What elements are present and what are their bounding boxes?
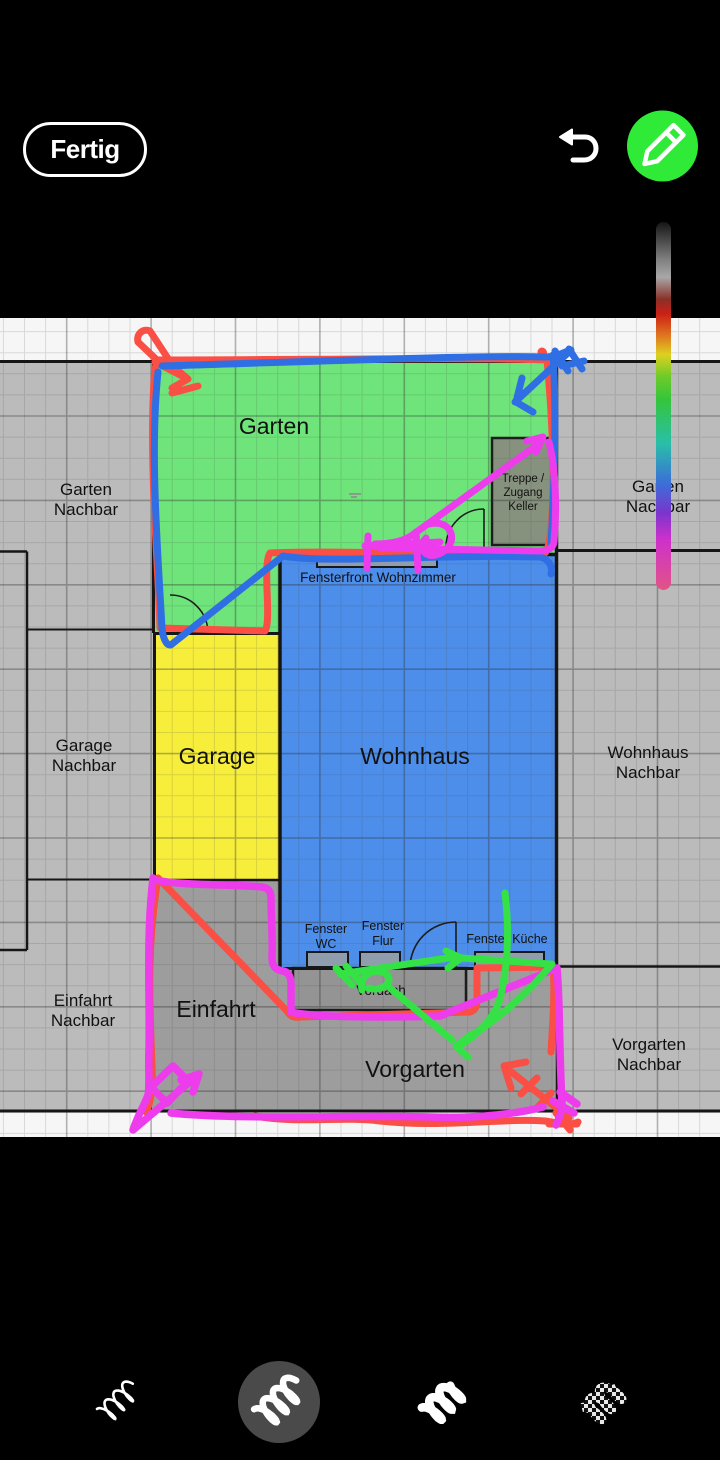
svg-text:WC: WC	[316, 937, 337, 951]
svg-text:GartenNachbar: GartenNachbar	[54, 480, 119, 519]
svg-text:Vorgarten: Vorgarten	[365, 1056, 465, 1082]
svg-text:Fensterfront Wohnzimmer: Fensterfront Wohnzimmer	[300, 570, 456, 585]
svg-text:Keller: Keller	[508, 501, 538, 513]
svg-text:VorgartenNachbar: VorgartenNachbar	[612, 1035, 686, 1074]
svg-text:Fenster: Fenster	[362, 919, 404, 933]
svg-text:Wohnhaus: Wohnhaus	[360, 743, 470, 769]
svg-text:EinfahrtNachbar: EinfahrtNachbar	[51, 991, 116, 1030]
svg-text:GarageNachbar: GarageNachbar	[52, 736, 117, 775]
svg-text:Fenster: Fenster	[305, 922, 347, 936]
svg-text:Einfahrt: Einfahrt	[176, 996, 256, 1022]
svg-text:Treppe /: Treppe /	[502, 473, 545, 485]
svg-text:Garage: Garage	[179, 743, 256, 769]
svg-text:Flur: Flur	[372, 934, 394, 948]
svg-text:WohnhausNachbar: WohnhausNachbar	[608, 743, 689, 782]
svg-text:Zugang: Zugang	[503, 487, 542, 499]
svg-text:Garten: Garten	[239, 413, 309, 439]
